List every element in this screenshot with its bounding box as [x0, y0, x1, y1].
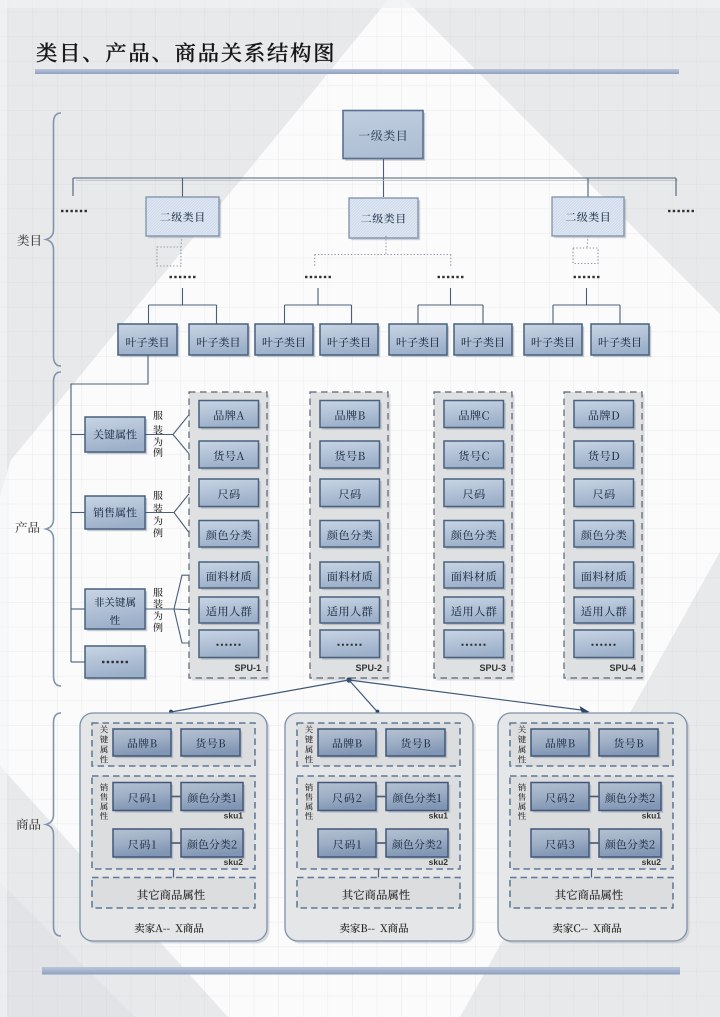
svg-text:sku1: sku1 — [642, 811, 662, 821]
svg-text:SPU-4: SPU-4 — [609, 663, 636, 673]
svg-text:SPU-1: SPU-1 — [234, 663, 261, 673]
svg-text:sku1: sku1 — [429, 811, 449, 821]
svg-text:sku2: sku2 — [224, 857, 244, 867]
svg-text:sku2: sku2 — [429, 857, 449, 867]
svg-text:sku1: sku1 — [224, 811, 244, 821]
svg-text:SPU-2: SPU-2 — [355, 663, 382, 673]
svg-text:sku2: sku2 — [642, 857, 662, 867]
svg-text:SPU-3: SPU-3 — [479, 663, 506, 673]
